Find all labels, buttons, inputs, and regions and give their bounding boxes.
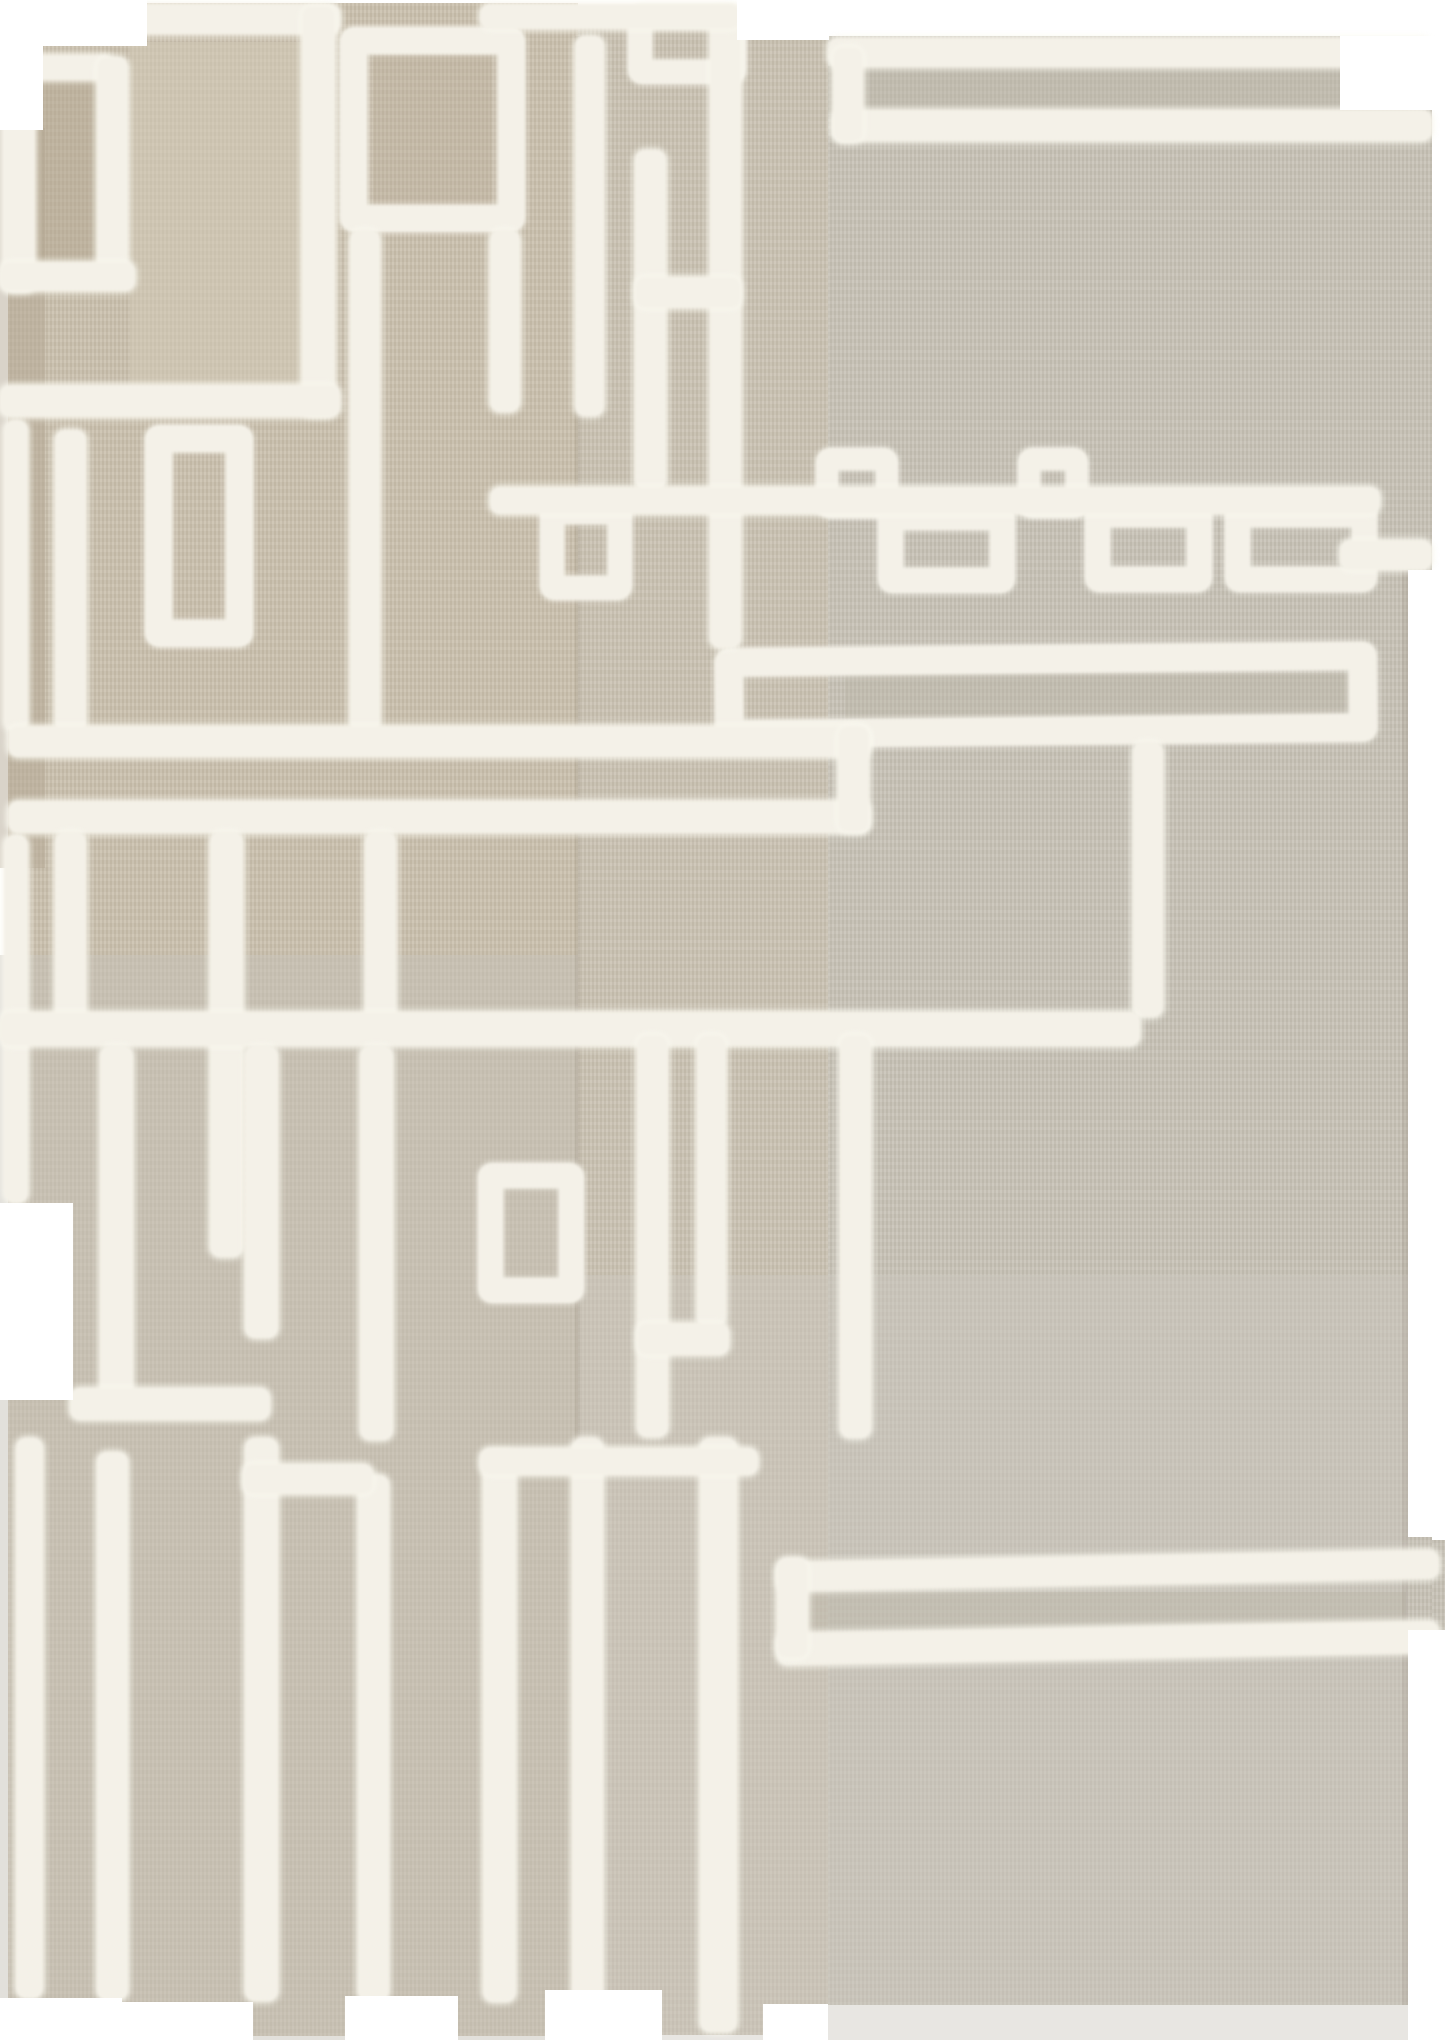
tufted-line (360, 1046, 393, 1440)
tufted-line (245, 1438, 278, 2001)
tufted-line (97, 57, 128, 279)
tufted-line (0, 262, 135, 291)
tufted-line (245, 1046, 278, 1338)
tufted-line (838, 726, 869, 832)
background-cutout (763, 2004, 828, 2040)
tufted-line (350, 230, 380, 732)
tufted-line (637, 1035, 668, 1437)
tufted-line (1133, 742, 1163, 1017)
background-cutout (545, 1990, 662, 2040)
background-cutout (0, 1203, 73, 1400)
tufted-line (16, 1438, 43, 1998)
tufted-line (697, 1035, 726, 1327)
tufted-line (635, 150, 666, 490)
tufted-line (833, 110, 1432, 141)
tufted-line (777, 1558, 808, 1658)
background-cutout (0, 46, 43, 130)
background-cutout (1408, 570, 1445, 1537)
tufted-line (575, 36, 604, 416)
tufted-line (700, 1438, 737, 2032)
background-cutout (345, 1996, 458, 2040)
tufted-line (480, 4, 740, 29)
background-cutout (0, 0, 147, 46)
background-cutout (1408, 1630, 1445, 2008)
tufted-rectangle-outline (878, 505, 1015, 593)
tufted-line (572, 1438, 603, 2001)
tufted-line (0, 385, 340, 417)
rug-photo (0, 0, 1445, 2040)
background-cutout (737, 0, 829, 40)
tufted-line (243, 1464, 373, 1494)
tufted-rectangle-outline (145, 425, 253, 647)
tufted-rectangle-outline (540, 500, 632, 600)
background-cutout (1340, 36, 1445, 110)
tufted-line (833, 47, 863, 142)
tufted-line (490, 487, 1380, 514)
tufted-line (8, 726, 870, 757)
tufted-line (55, 430, 86, 732)
tufted-line (97, 1452, 128, 2000)
tufted-line (358, 1475, 389, 2001)
tufted-line (635, 277, 741, 308)
tufted-rectangle-outline (478, 1163, 584, 1303)
tufted-line (8, 801, 870, 833)
tufted-line (55, 832, 86, 1030)
tufted-line (100, 1046, 133, 1400)
tufted-line (1340, 540, 1432, 570)
tufted-line (490, 230, 520, 412)
background-cutout (0, 1998, 122, 2040)
tufted-line (0, 1012, 1140, 1046)
tufted-line (480, 1448, 758, 1475)
tufted-line (302, 6, 335, 416)
tufted-line (710, 8, 741, 648)
tufted-line (4, 420, 28, 732)
tufted-line (70, 1388, 270, 1420)
background-cutout (122, 2002, 253, 2040)
tufted-rectangle-outline (340, 27, 525, 232)
tufted-line (365, 832, 396, 1030)
tufted-line (483, 1452, 516, 2002)
tufted-rectangle-outline (1085, 502, 1212, 592)
tufted-line (840, 1035, 871, 1438)
tufted-line (637, 1323, 729, 1355)
